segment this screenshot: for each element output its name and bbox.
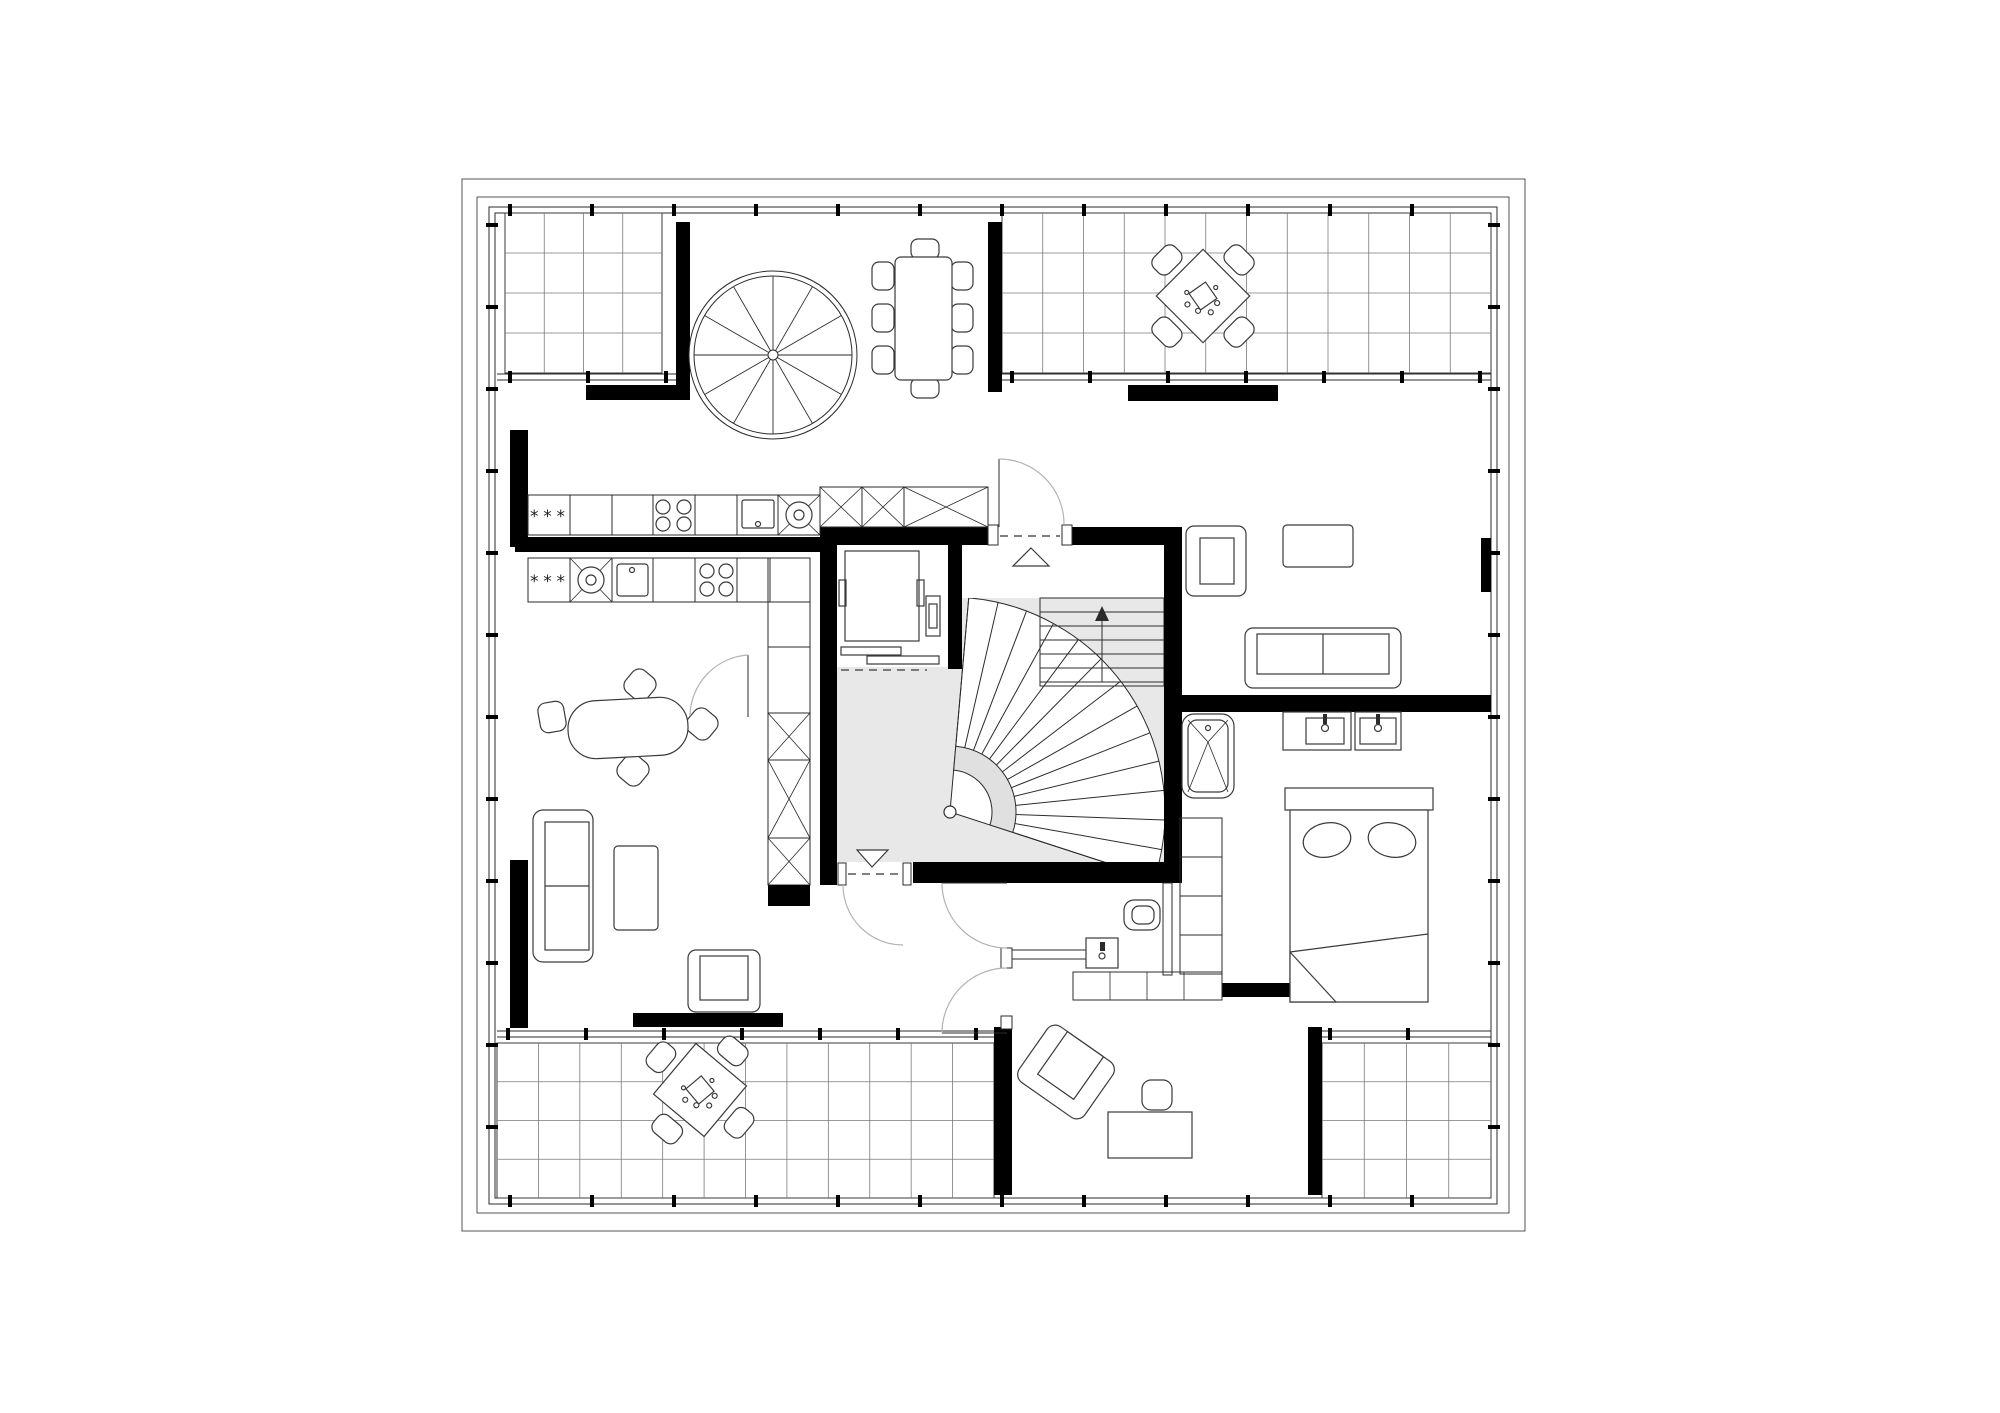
- toilet: [1124, 900, 1160, 930]
- elevator-sliding-door: [841, 647, 901, 655]
- spiral-staircase: [689, 271, 857, 439]
- coffee-table-left: [614, 846, 658, 930]
- window-pier-top-right: [1128, 385, 1278, 401]
- dining-table-top: [895, 257, 952, 380]
- sofa-left: [533, 810, 593, 962]
- dining-table-eight-seats: [872, 239, 973, 398]
- coffee-table-top-right: [1283, 525, 1353, 567]
- armchair-top-right: [1186, 526, 1246, 596]
- wc-washbasin: [1086, 938, 1118, 968]
- double-bed: [1285, 788, 1433, 1002]
- freezer-stars-upper: ***: [529, 507, 569, 527]
- desk-bottom-room: [1108, 1112, 1192, 1158]
- washbasin: [1355, 712, 1401, 750]
- armchair-left: [688, 950, 760, 1012]
- floor-plan-canvas: *** ***: [0, 0, 2000, 1413]
- window-pier-bottom-left: [633, 1013, 783, 1027]
- washbasin-counter: [1283, 712, 1351, 750]
- headboard: [1285, 788, 1433, 810]
- kitchen-divider-wall: [515, 537, 820, 552]
- floor-plan-page: *** ***: [0, 0, 2000, 1413]
- elevator: [837, 545, 948, 670]
- living-bedroom-wall: [1164, 695, 1491, 712]
- sofa-top-right: [1245, 628, 1401, 688]
- stool-bottom-room: [1142, 1080, 1172, 1110]
- freezer-stars-lower: ***: [529, 572, 569, 592]
- bathtub: [1182, 714, 1234, 798]
